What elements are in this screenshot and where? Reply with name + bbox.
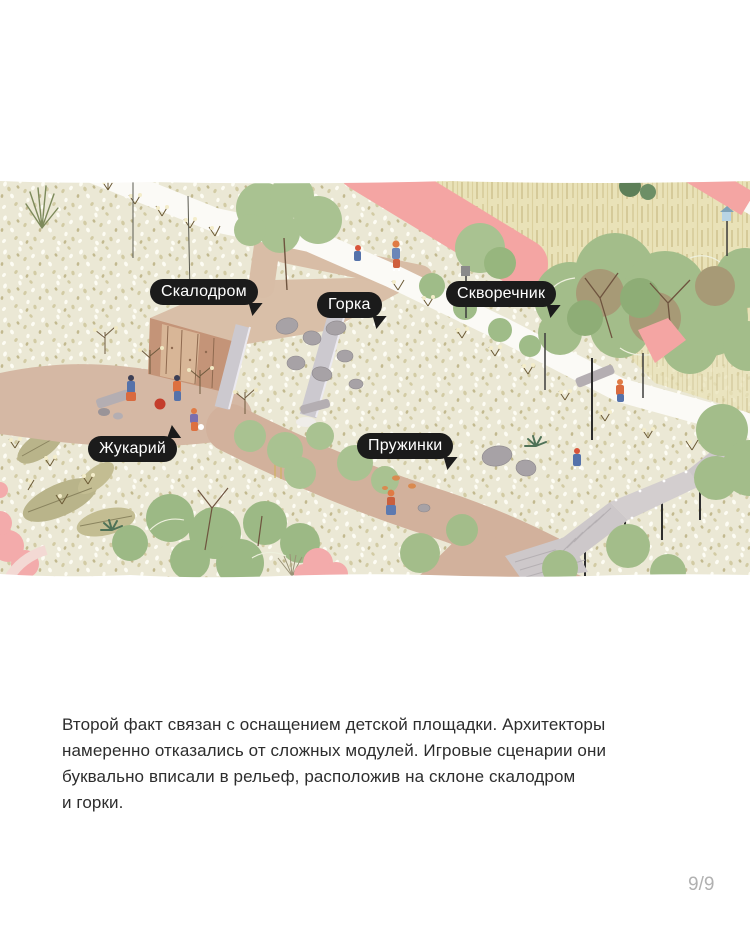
park-map-canvas xyxy=(0,178,750,580)
person-boulevard xyxy=(616,379,624,402)
page-indicator: 9/9 xyxy=(688,874,714,896)
adult-orange xyxy=(173,375,181,401)
park-map-illustration: Скалодром Горка Скворечник Жукарий Пружи… xyxy=(0,178,750,580)
caption-line: намеренно отказались от сложных модулей.… xyxy=(62,738,722,764)
map-label-birdhouse: Скворечник xyxy=(446,281,556,307)
map-label-slide: Горка xyxy=(317,292,382,318)
caption-paragraph: Второй факт связан с оснащением детской … xyxy=(62,712,722,816)
map-label-climbing-wall: Скалодром xyxy=(150,279,258,305)
map-label-text: Пружинки xyxy=(368,437,442,454)
caption-line: Второй факт связан с оснащением детской … xyxy=(62,712,722,738)
caption-line: и горки. xyxy=(62,790,722,816)
map-label-springs: Пружинки xyxy=(357,433,453,459)
map-label-text: Скалодром xyxy=(161,283,247,300)
caption-line: буквально вписали в рельеф, расположив н… xyxy=(62,764,722,790)
red-ball xyxy=(155,399,166,410)
map-label-text: Скворечник xyxy=(457,285,545,302)
map-label-bug-hotel: Жукарий xyxy=(88,436,177,462)
map-label-text: Жукарий xyxy=(99,440,166,457)
person-walker xyxy=(392,240,400,271)
map-top-edge xyxy=(0,178,750,183)
map-label-text: Горка xyxy=(328,296,371,313)
